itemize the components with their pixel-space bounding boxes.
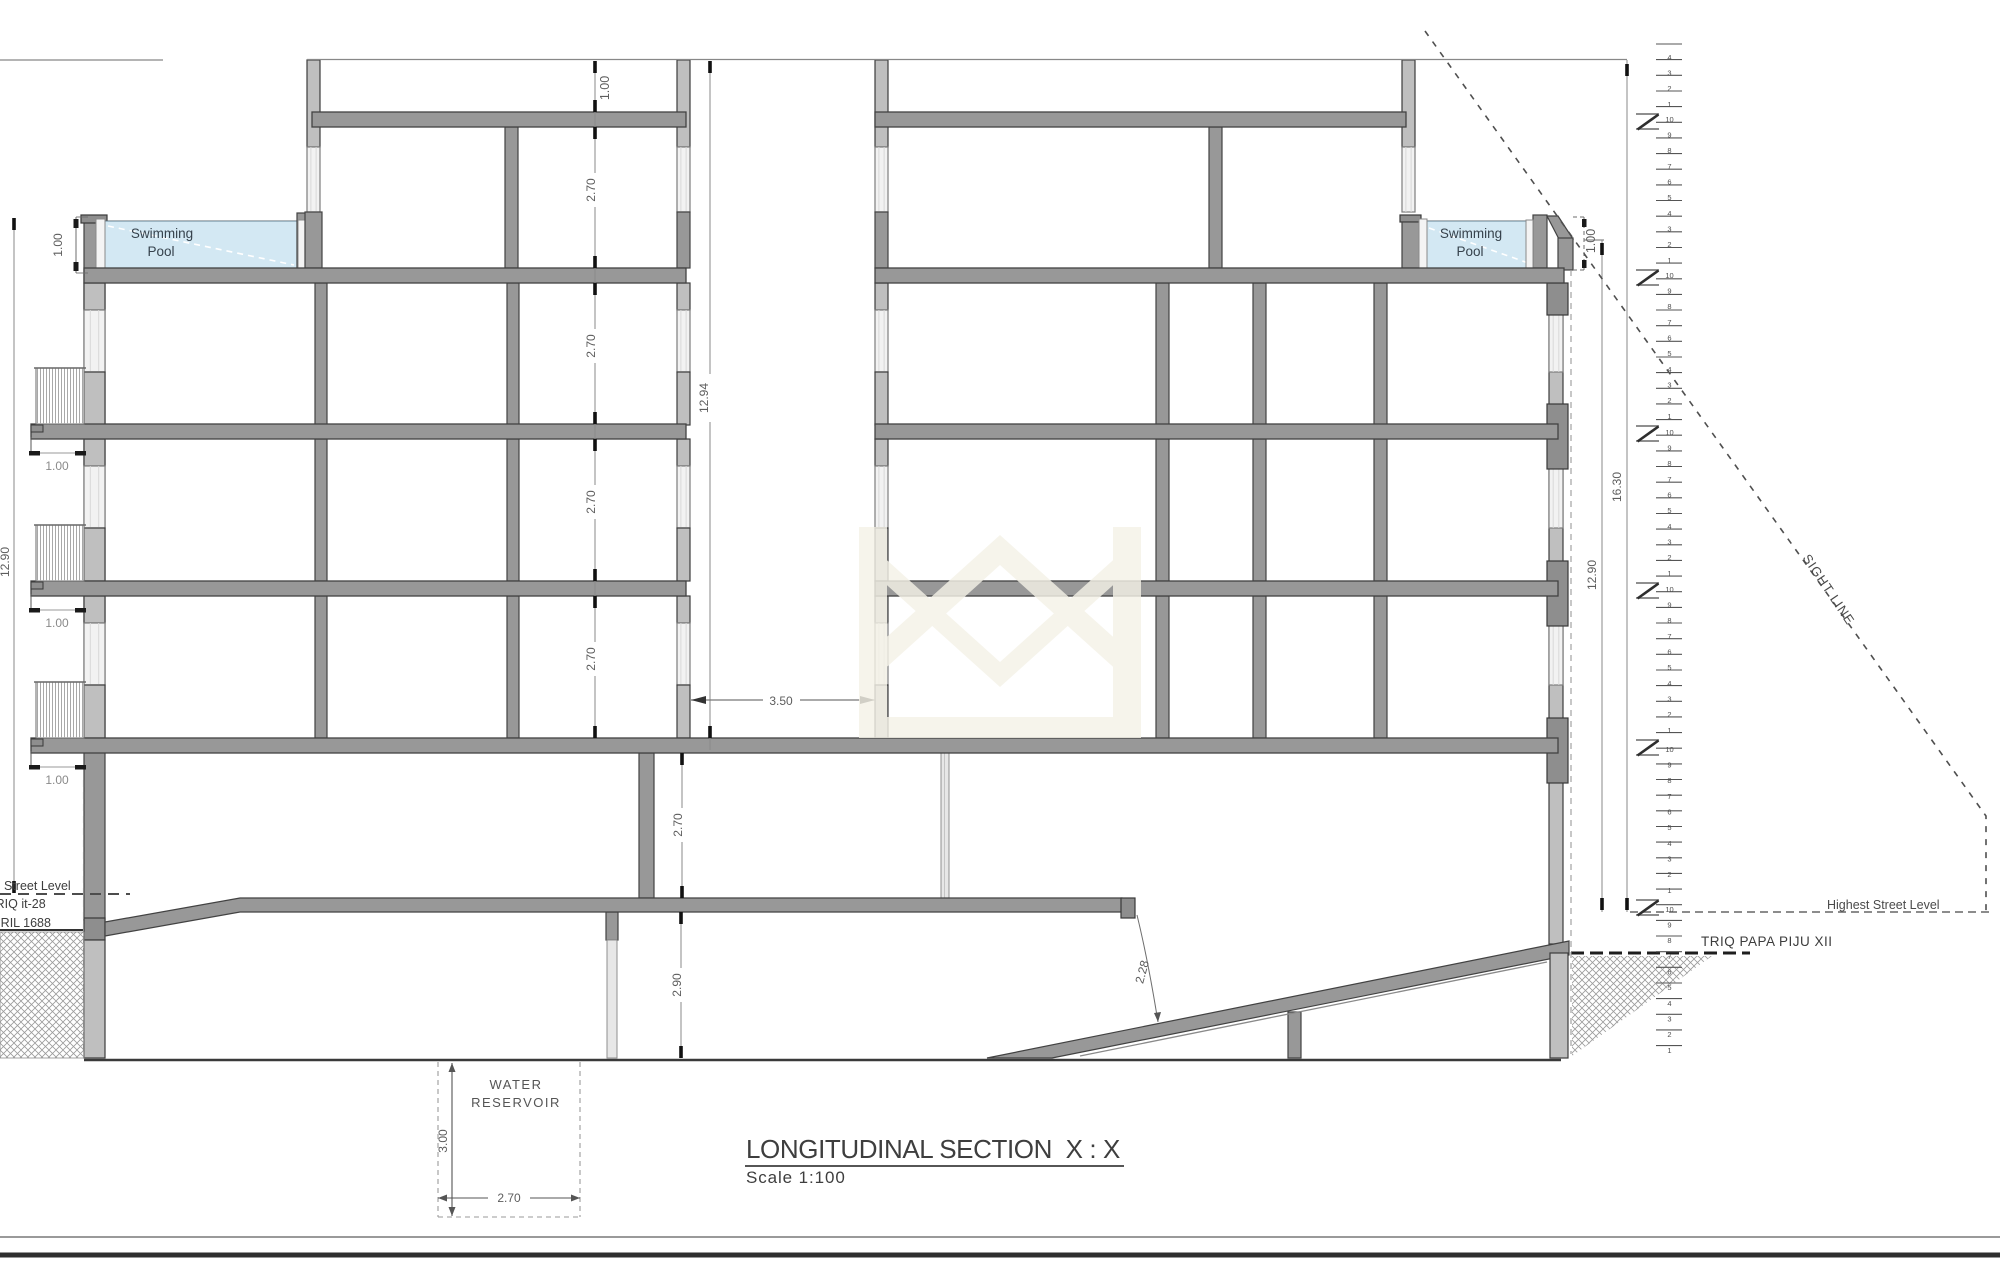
svg-text:Pool: Pool — [1456, 244, 1483, 259]
svg-text:9: 9 — [1667, 287, 1671, 296]
svg-text:Swimming: Swimming — [1440, 226, 1502, 241]
svg-text:5: 5 — [1667, 823, 1671, 832]
svg-text:4: 4 — [1667, 365, 1671, 374]
svg-text:5: 5 — [1667, 983, 1671, 992]
svg-text:5: 5 — [1667, 506, 1671, 515]
svg-text:3: 3 — [1667, 1015, 1671, 1024]
svg-text:10: 10 — [1665, 428, 1673, 437]
svg-text:10: 10 — [1665, 115, 1673, 124]
svg-text:1: 1 — [1667, 100, 1671, 109]
svg-text:2.70: 2.70 — [584, 647, 598, 671]
svg-text:1: 1 — [1667, 726, 1671, 735]
svg-text:6: 6 — [1667, 491, 1671, 500]
svg-text:2.70: 2.70 — [671, 813, 685, 837]
svg-text:2: 2 — [1667, 1030, 1671, 1039]
svg-text:2.70: 2.70 — [584, 490, 598, 514]
svg-text:8: 8 — [1667, 302, 1671, 311]
svg-text:8: 8 — [1667, 616, 1671, 625]
svg-text:3: 3 — [1667, 69, 1671, 78]
svg-text:TRIQ it-28: TRIQ it-28 — [0, 897, 46, 911]
svg-text:6: 6 — [1667, 648, 1671, 657]
svg-text:10: 10 — [1665, 585, 1673, 594]
svg-text:10: 10 — [1665, 745, 1673, 754]
svg-text:7: 7 — [1667, 632, 1671, 641]
svg-text:1.00: 1.00 — [51, 233, 65, 257]
svg-text:LONGITUDINAL SECTION X : X: LONGITUDINAL SECTION X : X — [746, 1134, 1120, 1164]
svg-text:8: 8 — [1667, 936, 1671, 945]
svg-text:1.00: 1.00 — [45, 773, 69, 787]
svg-text:9: 9 — [1667, 921, 1671, 930]
svg-text:TRIQ PAPA PIJU XII: TRIQ PAPA PIJU XII — [1701, 934, 1833, 949]
svg-text:1: 1 — [1667, 256, 1671, 265]
svg-text:3: 3 — [1667, 381, 1671, 390]
svg-text:7: 7 — [1667, 952, 1671, 961]
svg-text:1: 1 — [1667, 886, 1671, 895]
svg-text:3.50: 3.50 — [769, 694, 793, 708]
svg-text:8: 8 — [1667, 146, 1671, 155]
svg-text:WATER: WATER — [490, 1077, 543, 1092]
svg-text:9: 9 — [1667, 761, 1671, 770]
svg-text:4: 4 — [1667, 209, 1671, 218]
svg-text:1.00: 1.00 — [45, 459, 69, 473]
svg-text:APRIL 1688: APRIL 1688 — [0, 916, 51, 930]
svg-text:2: 2 — [1667, 553, 1671, 562]
svg-text:7: 7 — [1667, 318, 1671, 327]
svg-text:12.94: 12.94 — [697, 383, 711, 413]
svg-text:8: 8 — [1667, 776, 1671, 785]
svg-text:1: 1 — [1667, 412, 1671, 421]
svg-text:Highest Street Level: Highest Street Level — [1827, 898, 1940, 912]
svg-text:Scale 1:100: Scale 1:100 — [746, 1168, 846, 1187]
svg-text:8: 8 — [1667, 459, 1671, 468]
svg-text:3.00: 3.00 — [436, 1129, 450, 1153]
svg-text:2: 2 — [1667, 710, 1671, 719]
svg-text:9: 9 — [1667, 131, 1671, 140]
svg-text:6: 6 — [1667, 808, 1671, 817]
svg-text:1: 1 — [1667, 569, 1671, 578]
svg-text:5: 5 — [1667, 349, 1671, 358]
svg-text:2: 2 — [1667, 240, 1671, 249]
svg-text:1: 1 — [1667, 1046, 1671, 1055]
svg-text:4: 4 — [1667, 522, 1671, 531]
svg-text:3: 3 — [1667, 538, 1671, 547]
svg-text:9: 9 — [1667, 444, 1671, 453]
svg-text:16.30: 16.30 — [1610, 472, 1624, 502]
svg-text:SIGHT LINE: SIGHT LINE — [1800, 551, 1858, 627]
svg-text:9: 9 — [1667, 601, 1671, 610]
svg-text:3: 3 — [1667, 695, 1671, 704]
svg-text:1.00: 1.00 — [45, 616, 69, 630]
svg-text:10: 10 — [1665, 905, 1673, 914]
svg-text:10: 10 — [1665, 271, 1673, 280]
svg-text:2: 2 — [1667, 84, 1671, 93]
svg-text:2.70: 2.70 — [584, 178, 598, 202]
svg-text:2.28: 2.28 — [1132, 959, 1152, 985]
svg-text:2: 2 — [1667, 870, 1671, 879]
svg-text:2: 2 — [1667, 396, 1671, 405]
svg-text:7: 7 — [1667, 475, 1671, 484]
svg-text:6: 6 — [1667, 968, 1671, 977]
svg-text:7: 7 — [1667, 162, 1671, 171]
svg-text:4: 4 — [1667, 53, 1671, 62]
svg-text:4: 4 — [1667, 679, 1671, 688]
svg-text:Street Level: Street Level — [4, 879, 71, 893]
svg-text:Pool: Pool — [147, 244, 174, 259]
svg-text:2.90: 2.90 — [670, 973, 684, 997]
svg-text:6: 6 — [1667, 334, 1671, 343]
svg-text:12.90: 12.90 — [1585, 560, 1599, 590]
svg-text:5: 5 — [1667, 193, 1671, 202]
svg-text:12.90: 12.90 — [0, 547, 12, 577]
svg-text:2.70: 2.70 — [497, 1191, 521, 1205]
svg-text:4: 4 — [1667, 999, 1671, 1008]
svg-text:Swimming: Swimming — [131, 226, 193, 241]
svg-text:4: 4 — [1667, 839, 1671, 848]
svg-text:6: 6 — [1667, 178, 1671, 187]
svg-text:RESERVOIR: RESERVOIR — [471, 1095, 561, 1110]
svg-text:1.00: 1.00 — [598, 76, 612, 100]
svg-text:3: 3 — [1667, 855, 1671, 864]
svg-text:7: 7 — [1667, 792, 1671, 801]
svg-text:5: 5 — [1667, 663, 1671, 672]
svg-text:3: 3 — [1667, 225, 1671, 234]
svg-text:2.70: 2.70 — [584, 334, 598, 358]
svg-text:1.00: 1.00 — [1584, 229, 1598, 253]
